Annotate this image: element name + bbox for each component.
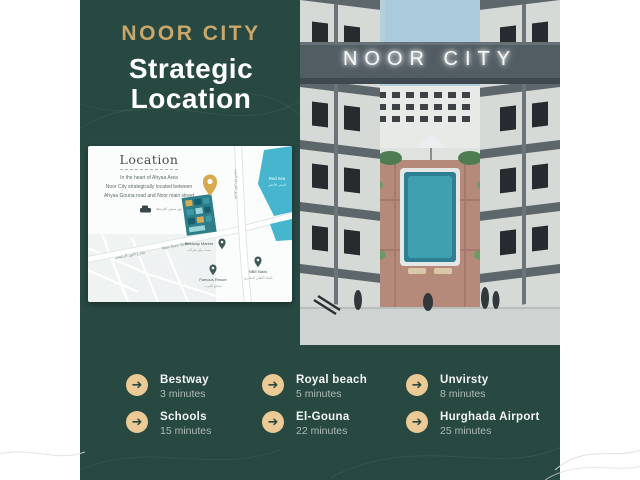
distance-label: Bestway <box>160 374 209 386</box>
map-title-underline <box>120 169 178 170</box>
map-water-area <box>258 146 292 216</box>
map-card-header: Location In the heart of Ahyaa Area Noor… <box>88 152 210 201</box>
arrow-circle-icon: ➜ <box>126 411 148 433</box>
distance-item-bestway: ➜ Bestway 3 minutes <box>126 374 209 400</box>
map-poi-bestway-label: Bestway Market <box>185 241 214 246</box>
map-car-icon <box>140 206 151 213</box>
arrow-circle-icon: ➜ <box>406 374 428 396</box>
map-side-road-label-ar: طريق الغردقة الجونة <box>234 169 238 199</box>
map-poi-pin-bestway <box>218 238 225 249</box>
distance-time: 8 minutes <box>440 388 488 400</box>
map-desc-line1: In the heart of Ahyaa Area <box>88 174 210 183</box>
distance-time: 5 minutes <box>296 388 367 400</box>
map-project-label-ar: نور سيتي الغردقة <box>156 207 182 211</box>
map-poi-bestway-label-ar: بست واي ماركت <box>187 248 211 252</box>
project-render-image: NOOR CITY <box>300 0 560 345</box>
map-card-description: In the heart of Ahyaa Area Noor City str… <box>88 174 210 201</box>
distance-label: Schools <box>160 411 211 423</box>
distance-time: 15 minutes <box>160 425 211 437</box>
map-water-label-ar: البحر الأحمر <box>267 182 286 187</box>
arrow-circle-icon: ➜ <box>406 411 428 433</box>
distance-item-royal-beach: ➜ Royal beach 5 minutes <box>262 374 367 400</box>
arrow-circle-icon: ➜ <box>262 411 284 433</box>
flyer-page: NOOR CITY Strategic Location <box>0 0 640 480</box>
map-poi-bank-label-ar: البنك الأهلي المصري <box>244 275 273 280</box>
map-poi-bank-label: NBE Bank <box>249 269 267 274</box>
distance-item-schools: ➜ Schools 15 minutes <box>126 411 211 437</box>
distance-label: Unvirsty <box>440 374 488 386</box>
page-title: Strategic Location <box>80 54 302 113</box>
distance-item-hurghada-airport: ➜ Hurghada Airport 25 minutes <box>406 411 540 437</box>
flyer-canvas: NOOR CITY Strategic Location <box>80 0 560 480</box>
brand-title: NOOR CITY <box>80 22 302 46</box>
render-sign-text: NOOR CITY <box>300 48 560 71</box>
map-card-title: Location <box>88 152 210 167</box>
distance-label: Hurghada Airport <box>440 411 540 423</box>
distance-item-el-gouna: ➜ El-Gouna 22 minutes <box>262 411 350 437</box>
location-map-card: Red Sea البحر الأحمر <box>88 146 292 302</box>
distance-text: Royal beach 5 minutes <box>296 374 367 400</box>
map-poi-resort-label-ar: منتجع العرب <box>204 284 222 288</box>
distance-text: Bestway 3 minutes <box>160 374 209 400</box>
headline-line2: Location <box>80 84 302 114</box>
distance-time: 22 minutes <box>296 425 350 437</box>
distance-item-university: ➜ Unvirsty 8 minutes <box>406 374 488 400</box>
distance-label: Royal beach <box>296 374 367 386</box>
distance-text: Schools 15 minutes <box>160 411 211 437</box>
distance-text: El-Gouna 22 minutes <box>296 411 350 437</box>
arrow-circle-icon: ➜ <box>126 374 148 396</box>
arrow-circle-icon: ➜ <box>262 374 284 396</box>
distance-text: Unvirsty 8 minutes <box>440 374 488 400</box>
headline-line1: Strategic <box>80 54 302 84</box>
map-desc-line2: Noor City strategically located between <box>88 183 210 192</box>
distance-label: El-Gouna <box>296 411 350 423</box>
distance-time: 3 minutes <box>160 388 209 400</box>
map-poi-pin-bank <box>254 256 261 267</box>
map-desc-line3: Ahyaa Gouna road and Noor main street <box>88 192 210 201</box>
distance-text: Hurghada Airport 25 minutes <box>440 411 540 437</box>
map-poi-resort-label: Famous Resort <box>199 277 227 282</box>
map-water-label: Red Sea <box>269 176 286 181</box>
distance-time: 25 minutes <box>440 425 540 437</box>
